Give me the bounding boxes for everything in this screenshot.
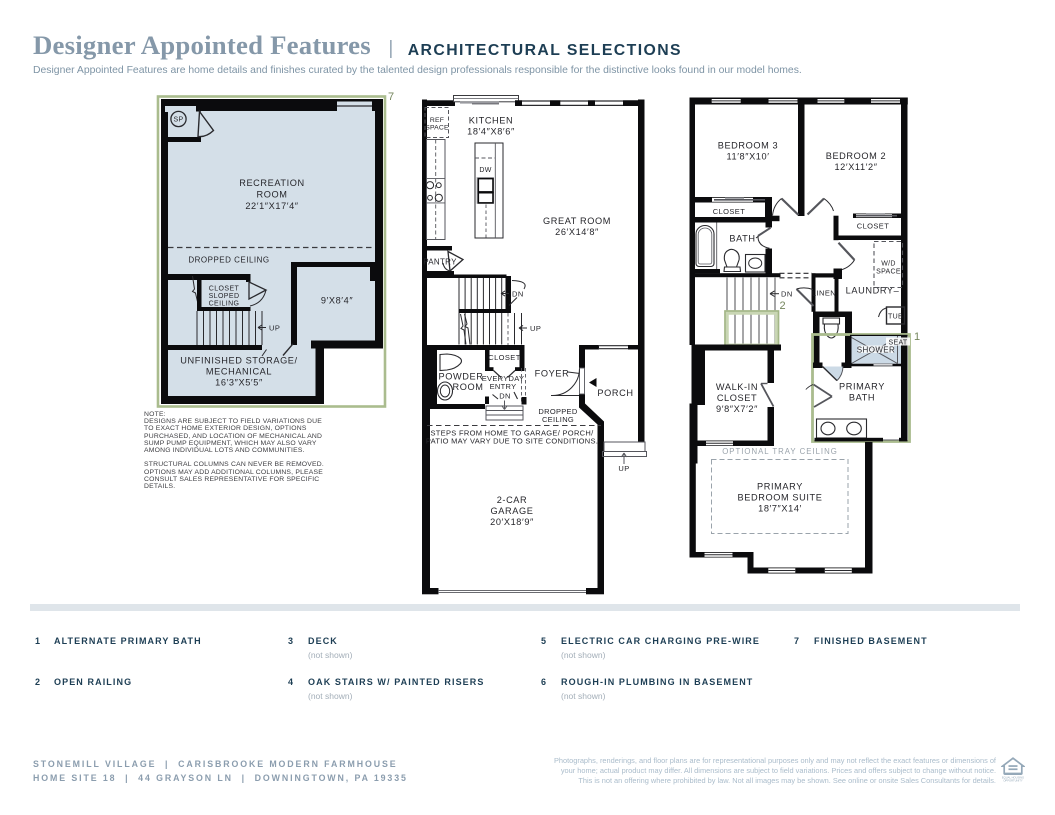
svg-text:1: 1 xyxy=(914,331,920,343)
svg-text:18′7″X14′: 18′7″X14′ xyxy=(758,504,802,514)
svg-text:DN: DN xyxy=(512,290,524,299)
svg-text:DN: DN xyxy=(781,290,793,299)
svg-text:OPPORTUNITY: OPPORTUNITY xyxy=(1003,779,1023,783)
svg-text:MECHANICAL: MECHANICAL xyxy=(206,367,272,377)
svg-text:26′X14′8″: 26′X14′8″ xyxy=(555,227,599,237)
svg-text:SP: SP xyxy=(174,117,184,124)
svg-text:9′X8′4″: 9′X8′4″ xyxy=(321,296,354,306)
svg-text:W/D: W/D xyxy=(881,261,896,268)
svg-text:DN: DN xyxy=(499,392,510,401)
svg-text:16′3″X5′5″: 16′3″X5′5″ xyxy=(215,378,263,388)
svg-text:BEDROOM 3: BEDROOM 3 xyxy=(718,141,779,151)
svg-text:ROOM: ROOM xyxy=(453,382,484,392)
svg-text:DW: DW xyxy=(479,167,491,174)
svg-text:12′X11′2″: 12′X11′2″ xyxy=(834,162,877,172)
svg-text:FOYER: FOYER xyxy=(535,369,570,379)
svg-text:SPACE: SPACE xyxy=(876,269,901,276)
svg-text:POWDER: POWDER xyxy=(439,372,484,382)
svg-text:RECREATION: RECREATION xyxy=(239,178,305,188)
svg-text:BEDROOM 2: BEDROOM 2 xyxy=(826,151,887,161)
svg-text:GREAT ROOM: GREAT ROOM xyxy=(543,216,611,226)
svg-text:11′8″X10′: 11′8″X10′ xyxy=(726,152,769,162)
svg-text:BATH: BATH xyxy=(849,393,875,403)
svg-text:PANTRY: PANTRY xyxy=(423,258,457,267)
svg-text:LINEN: LINEN xyxy=(812,289,836,298)
svg-text:PORCH: PORCH xyxy=(597,388,633,398)
svg-text:REF: REF xyxy=(430,117,444,124)
svg-text:22′1″X17′4″: 22′1″X17′4″ xyxy=(245,201,298,211)
svg-text:KITCHEN: KITCHEN xyxy=(469,116,514,126)
svg-text:GARAGE: GARAGE xyxy=(491,506,534,516)
svg-text:CLOSET: CLOSET xyxy=(488,353,520,362)
svg-text:2-CAR: 2-CAR xyxy=(497,495,528,505)
svg-text:18′4″X8′6″: 18′4″X8′6″ xyxy=(467,127,515,137)
svg-text:PRIMARY: PRIMARY xyxy=(757,482,803,492)
svg-text:WALK-IN: WALK-IN xyxy=(716,382,758,392)
svg-text:7: 7 xyxy=(388,91,394,103)
svg-text:UNFINISHED STORAGE/: UNFINISHED STORAGE/ xyxy=(180,356,297,366)
svg-text:OPTIONAL TRAY CEILING: OPTIONAL TRAY CEILING xyxy=(722,447,838,456)
svg-text:CLOSET: CLOSET xyxy=(209,286,240,293)
svg-text:9′8″X7′2″: 9′8″X7′2″ xyxy=(716,404,758,414)
svg-text:2: 2 xyxy=(780,300,786,312)
svg-text:ENTRY: ENTRY xyxy=(490,382,517,391)
svg-text:CLOSET: CLOSET xyxy=(713,207,745,216)
svg-text:CLOSET: CLOSET xyxy=(857,222,889,231)
svg-text:BEDROOM SUITE: BEDROOM SUITE xyxy=(738,493,823,503)
svg-text:20′X18′9″: 20′X18′9″ xyxy=(490,517,534,527)
svg-text:ROOM: ROOM xyxy=(257,190,288,200)
svg-text:PATIO MAY VARY DUE TO SITE CON: PATIO MAY VARY DUE TO SITE CONDITIONS. xyxy=(426,437,598,446)
svg-text:DROPPED CEILING: DROPPED CEILING xyxy=(188,256,269,265)
svg-text:SPACE: SPACE xyxy=(425,125,449,132)
svg-text:CEILING: CEILING xyxy=(542,415,574,424)
svg-text:CEILING: CEILING xyxy=(209,301,240,308)
svg-text:SHOWER: SHOWER xyxy=(857,346,895,355)
svg-text:BATH: BATH xyxy=(729,234,755,244)
svg-text:TUB: TUB xyxy=(888,314,903,321)
svg-text:UP: UP xyxy=(530,324,541,333)
svg-text:UP: UP xyxy=(269,324,280,333)
svg-text:PRIMARY: PRIMARY xyxy=(839,382,885,392)
svg-text:CLOSET: CLOSET xyxy=(717,393,757,403)
svg-text:UP: UP xyxy=(618,464,629,473)
svg-text:SLOPED: SLOPED xyxy=(209,293,240,300)
